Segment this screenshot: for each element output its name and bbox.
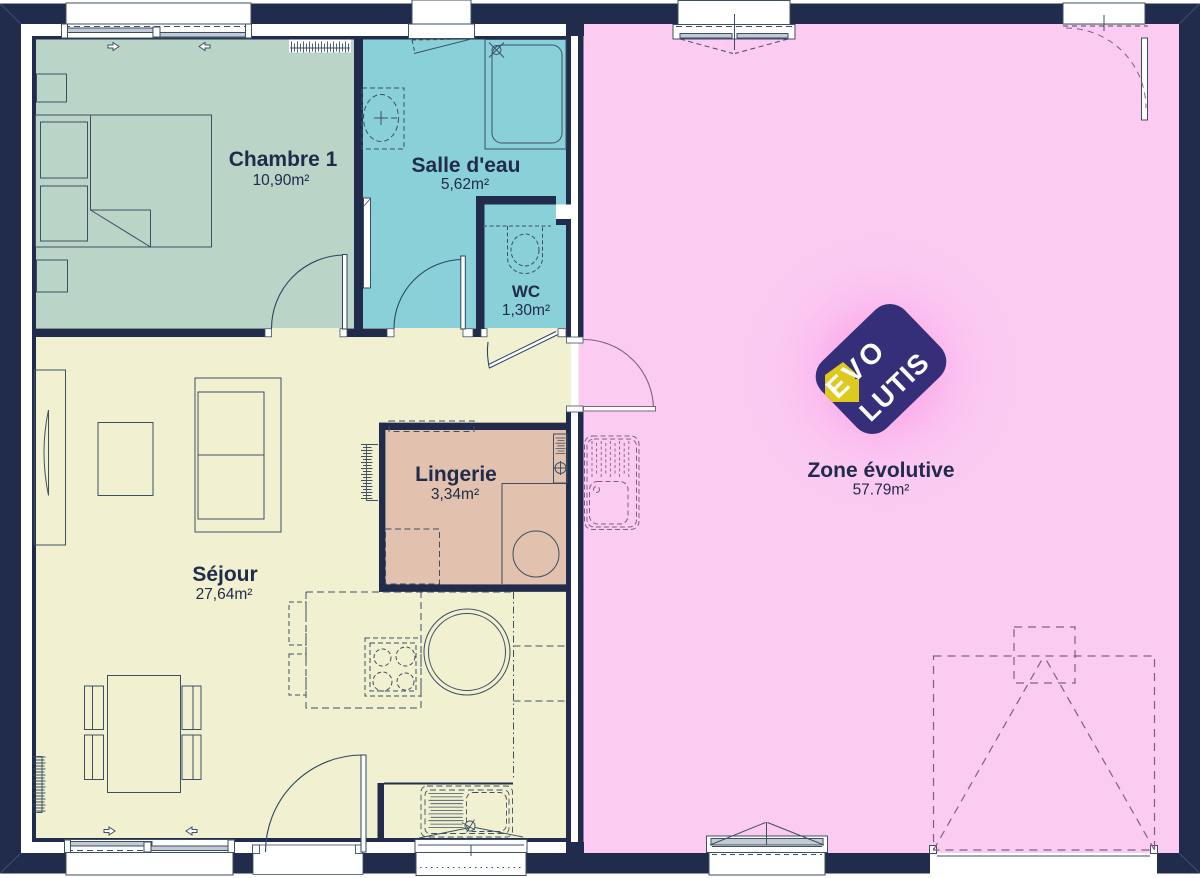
svg-text:1,30m²: 1,30m² bbox=[502, 302, 550, 319]
svg-text:Zone évolutive: Zone évolutive bbox=[807, 459, 954, 482]
svg-text:Séjour: Séjour bbox=[192, 563, 257, 586]
svg-text:3,34m²: 3,34m² bbox=[431, 486, 479, 503]
svg-text:57.79m²: 57.79m² bbox=[853, 482, 910, 499]
svg-text:Chambre 1: Chambre 1 bbox=[229, 148, 338, 171]
svg-text:27,64m²: 27,64m² bbox=[196, 586, 253, 603]
svg-text:Lingerie: Lingerie bbox=[415, 463, 497, 486]
svg-text:10,90m²: 10,90m² bbox=[253, 172, 310, 189]
svg-text:5,62m²: 5,62m² bbox=[441, 176, 489, 193]
svg-text:Salle d'eau: Salle d'eau bbox=[412, 154, 521, 177]
svg-text:WC: WC bbox=[512, 282, 540, 301]
